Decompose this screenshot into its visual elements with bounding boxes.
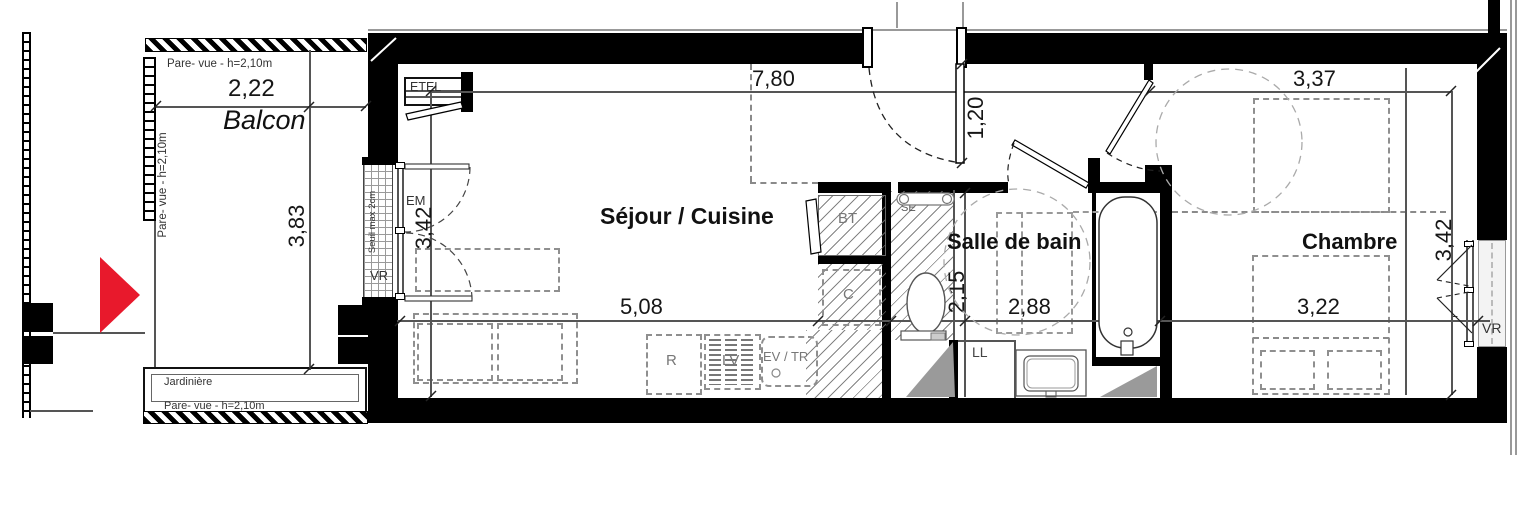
- bathtub-tap: [1121, 341, 1133, 355]
- etel-door-leaf: [406, 102, 463, 120]
- floor-wedge-wc: [906, 342, 955, 397]
- toilet-bowl: [907, 273, 945, 333]
- bedroom-door-swing: [1107, 153, 1160, 171]
- radiator-end-left: [900, 195, 909, 204]
- corner-mark-topleft: [371, 38, 396, 61]
- radiator-end-right: [943, 195, 952, 204]
- entrance-door-swing: [869, 68, 955, 162]
- bathtub: [1099, 197, 1157, 348]
- french-window-leaf-bottom: [405, 296, 472, 301]
- drawing-overlay: [0, 0, 1521, 526]
- corner-mark-topright: [1466, 48, 1500, 82]
- entrance-door-leaf: [956, 64, 964, 163]
- french-window-leaf-top: [405, 164, 469, 169]
- floor-wedge-tub: [1100, 366, 1157, 397]
- french-window-swing-top: [405, 167, 470, 232]
- bt-door-leaf: [806, 199, 821, 254]
- bathroom-door-swing: [1008, 143, 1014, 184]
- toilet-flush: [931, 333, 945, 340]
- turning-circle-bedroom: [1156, 69, 1302, 215]
- casement-chevron-bottom-dash: [1437, 292, 1469, 298]
- french-window-swing-bottom: [405, 233, 472, 299]
- casement-chevron-top-solid: [1437, 245, 1472, 280]
- floor-plan: Jardinière Pare- vue - h=2,10m Pare- vue…: [0, 0, 1521, 526]
- sink-drain-symbol: [772, 369, 780, 377]
- bathroom-door-leaf: [1012, 140, 1089, 188]
- turning-circle-bathroom: [944, 189, 1090, 335]
- casement-chevron-bottom-solid: [1437, 298, 1472, 333]
- bedroom-door-leaf: [1106, 80, 1153, 154]
- casement-chevron-top-dash: [1437, 280, 1469, 286]
